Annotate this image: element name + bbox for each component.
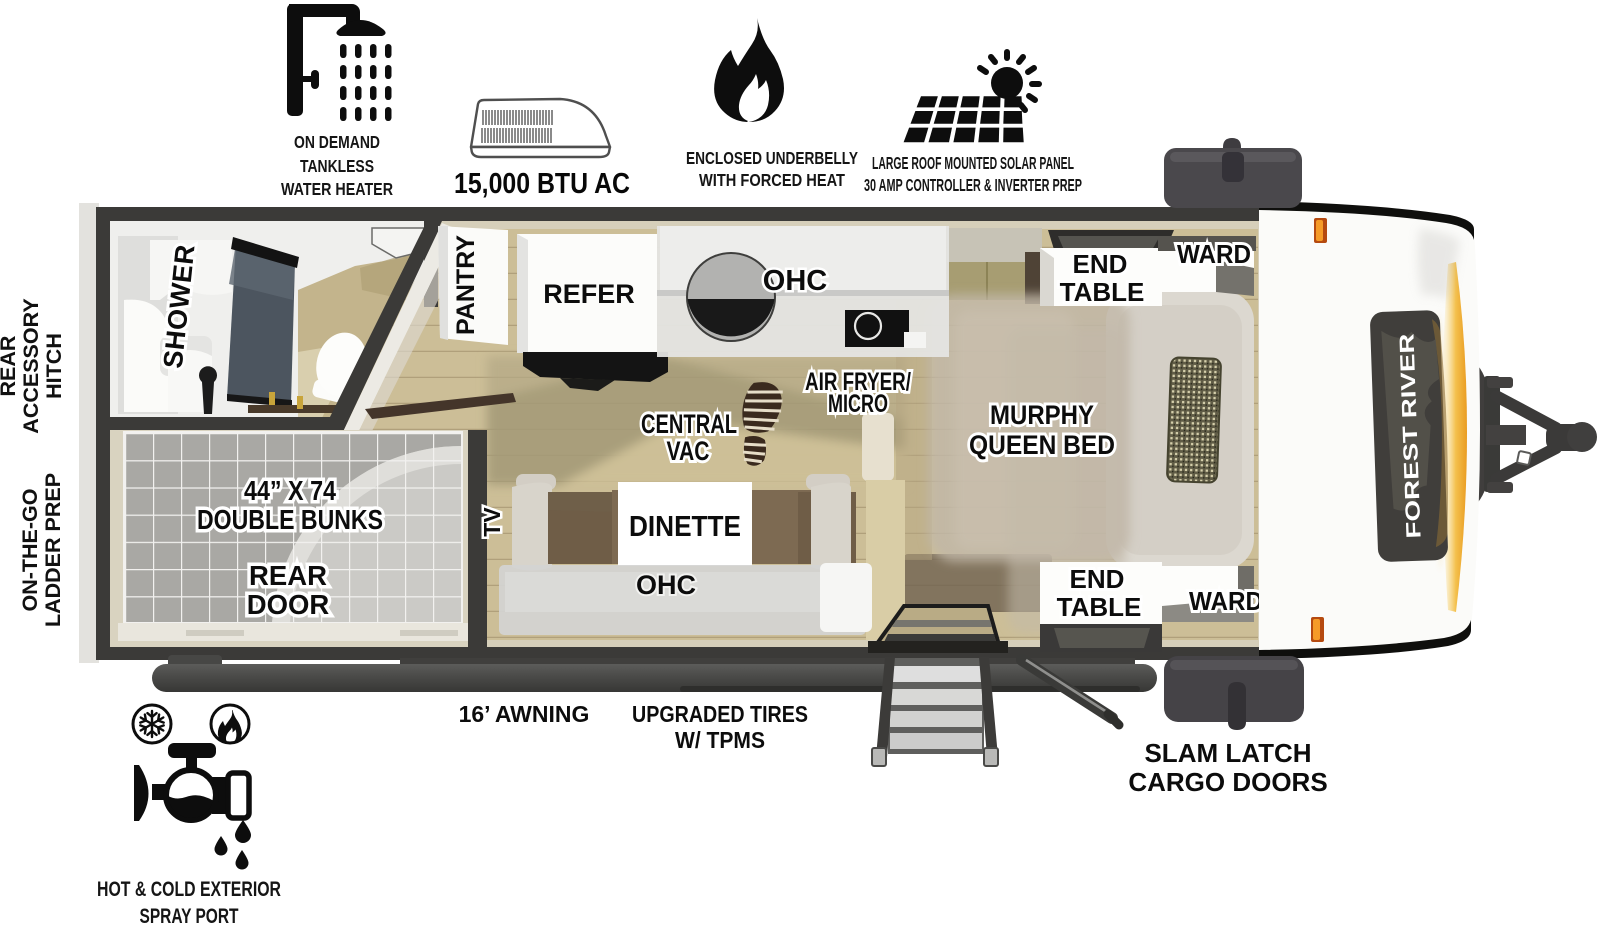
svg-text:VAC: VAC — [667, 436, 710, 466]
svg-text:PANTRY: PANTRY — [452, 235, 480, 335]
svg-text:LARGE ROOF MOUNTED SOLAR PANEL: LARGE ROOF MOUNTED SOLAR PANEL — [872, 153, 1074, 173]
svg-text:W/ TPMS: W/ TPMS — [675, 727, 765, 753]
svg-text:UPGRADED TIRES: UPGRADED TIRES — [632, 701, 808, 727]
svg-text:QUEEN BED: QUEEN BED — [969, 430, 1115, 460]
svg-text:ENCLOSED UNDERBELLY: ENCLOSED UNDERBELLY — [686, 148, 858, 168]
svg-text:16’ AWNING: 16’ AWNING — [459, 701, 590, 727]
svg-text:REFER: REFER — [543, 279, 635, 309]
svg-text:SLAM LATCH: SLAM LATCH — [1144, 738, 1311, 768]
svg-text:REAR: REAR — [0, 335, 20, 396]
svg-text:DINETTE: DINETTE — [629, 511, 741, 543]
svg-text:TV: TV — [479, 507, 505, 537]
svg-text:WATER HEATER: WATER HEATER — [281, 179, 393, 199]
svg-text:TANKLESS: TANKLESS — [300, 156, 374, 176]
svg-text:TABLE: TABLE — [1057, 592, 1142, 622]
svg-text:DOUBLE BUNKS: DOUBLE BUNKS — [197, 504, 383, 535]
svg-text:HOT & COLD EXTERIOR: HOT & COLD EXTERIOR — [97, 878, 281, 901]
svg-text:TABLE: TABLE — [1060, 277, 1145, 307]
svg-text:MURPHY: MURPHY — [990, 400, 1094, 430]
svg-text:WARD: WARD — [1177, 239, 1251, 269]
svg-text:LADDER PREP: LADDER PREP — [41, 473, 65, 627]
svg-text:END: END — [1073, 249, 1128, 279]
svg-text:30 AMP CONTROLLER & INVERTER P: 30 AMP CONTROLLER & INVERTER PREP — [864, 175, 1082, 195]
svg-text:44” X 74: 44” X 74 — [244, 475, 337, 506]
svg-text:MICRO: MICRO — [828, 390, 888, 418]
svg-text:ACCESSORY: ACCESSORY — [19, 298, 43, 433]
svg-text:WARD: WARD — [1189, 586, 1263, 616]
svg-text:ON-THE-GO: ON-THE-GO — [18, 488, 42, 611]
svg-text:CARGO DOORS: CARGO DOORS — [1128, 767, 1327, 797]
svg-text:END: END — [1070, 564, 1125, 594]
svg-text:DOOR: DOOR — [247, 589, 330, 620]
svg-text:SPRAY PORT: SPRAY PORT — [140, 905, 239, 928]
svg-text:15,000 BTU AC: 15,000 BTU AC — [454, 168, 630, 200]
svg-text:ON DEMAND: ON DEMAND — [294, 132, 380, 152]
svg-text:WITH FORCED HEAT: WITH FORCED HEAT — [699, 170, 845, 190]
svg-text:OHC: OHC — [636, 570, 696, 600]
svg-text:REAR: REAR — [249, 560, 327, 591]
svg-text:OHC: OHC — [763, 265, 828, 297]
svg-text:CENTRAL: CENTRAL — [641, 409, 737, 439]
svg-text:HITCH: HITCH — [42, 333, 66, 399]
